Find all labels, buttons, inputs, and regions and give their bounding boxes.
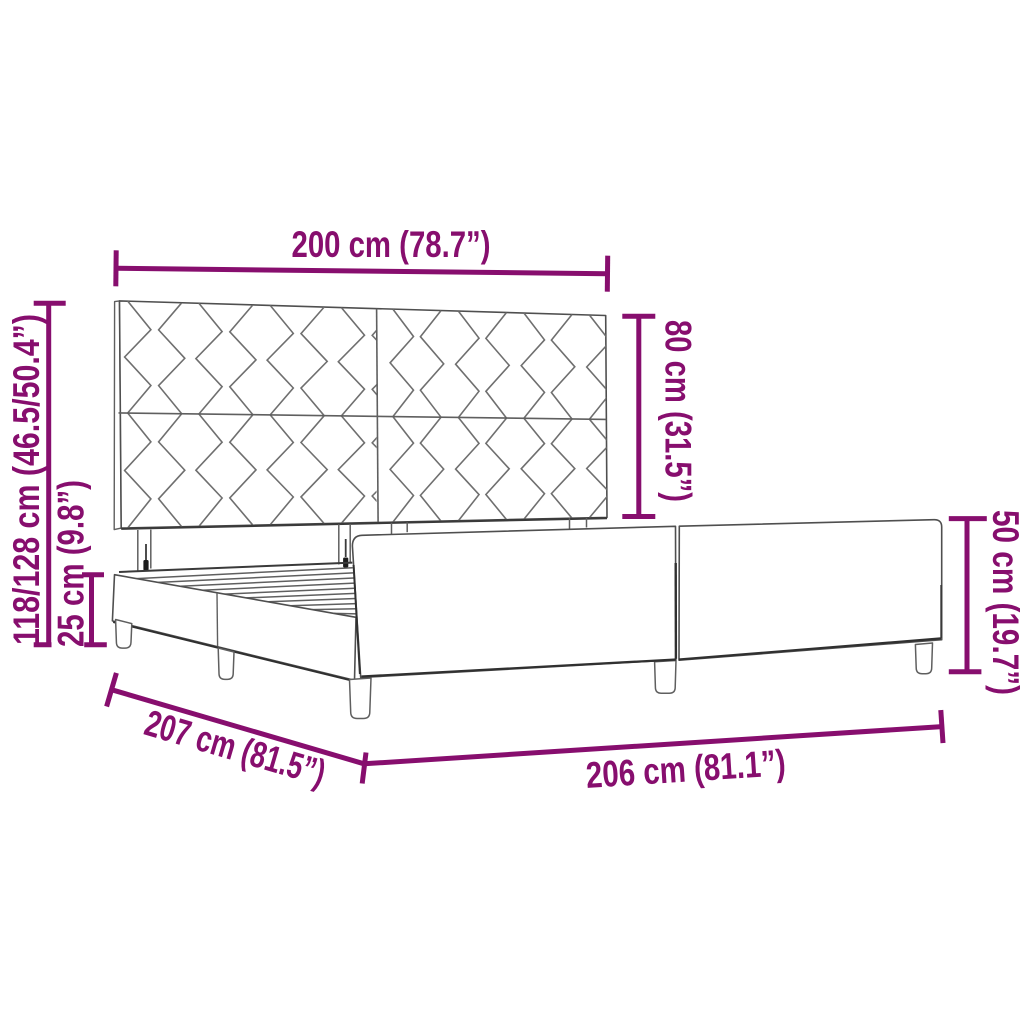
svg-text:50 cm (19.7”): 50 cm (19.7”) bbox=[985, 510, 1024, 695]
svg-text:200 cm (78.7”): 200 cm (78.7”) bbox=[292, 224, 491, 265]
svg-text:80 cm (31.5”): 80 cm (31.5”) bbox=[658, 320, 699, 502]
svg-text:25 cm (9.8”): 25 cm (9.8”) bbox=[51, 480, 92, 647]
svg-text:118/128 cm (46.5/50.4”): 118/128 cm (46.5/50.4”) bbox=[6, 314, 47, 645]
svg-text:207 cm (81.5”): 207 cm (81.5”) bbox=[140, 702, 330, 794]
svg-text:206 cm (81.1”): 206 cm (81.1”) bbox=[585, 742, 787, 796]
